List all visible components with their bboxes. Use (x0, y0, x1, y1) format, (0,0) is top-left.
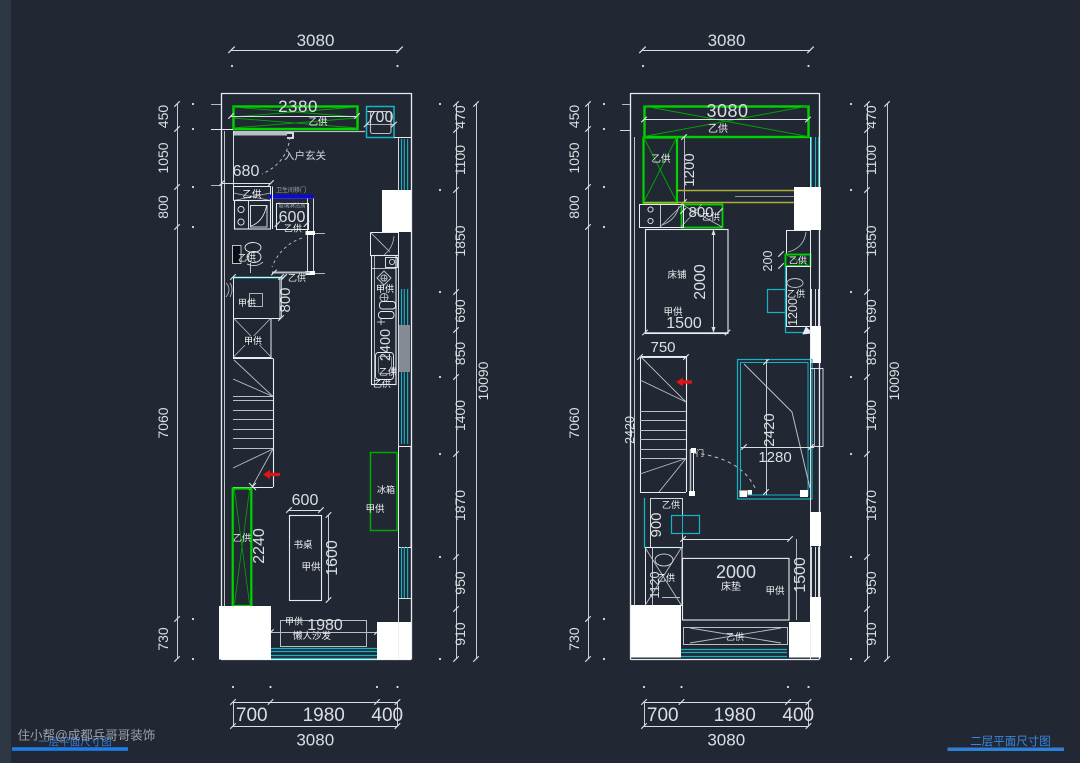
svg-text:10090: 10090 (475, 361, 491, 400)
svg-text:乙供: 乙供 (726, 631, 744, 642)
svg-text:10090: 10090 (886, 361, 902, 400)
svg-text:950: 950 (863, 571, 879, 595)
svg-text:3080: 3080 (707, 731, 745, 750)
svg-text:1280: 1280 (758, 449, 791, 466)
svg-text:1850: 1850 (863, 225, 879, 256)
svg-text:1050: 1050 (155, 142, 171, 173)
svg-text:乙供: 乙供 (238, 252, 256, 263)
svg-text:200: 200 (761, 251, 775, 272)
svg-text:400: 400 (371, 705, 403, 726)
svg-text:乙供: 乙供 (242, 189, 262, 201)
svg-text:卫生间移门: 卫生间移门 (276, 186, 306, 194)
svg-text:700: 700 (367, 109, 394, 126)
svg-text:乙供: 乙供 (708, 122, 728, 135)
svg-text:甲供: 甲供 (765, 585, 785, 597)
svg-text:730: 730 (566, 627, 582, 651)
svg-text:450: 450 (566, 105, 582, 129)
svg-text:入户玄关: 入户玄关 (284, 149, 326, 162)
svg-text:470: 470 (863, 105, 879, 129)
svg-text:2420: 2420 (761, 413, 778, 446)
svg-text:450: 450 (155, 105, 171, 129)
svg-text:900: 900 (648, 512, 665, 537)
svg-text:800: 800 (566, 195, 582, 219)
svg-text:1200: 1200 (681, 153, 698, 186)
svg-text:950: 950 (452, 571, 468, 595)
svg-text:700: 700 (236, 705, 268, 726)
svg-text:住小帮@成都兵哥哥装饰: 住小帮@成都兵哥哥装饰 (18, 729, 156, 743)
svg-text:2240: 2240 (251, 528, 268, 564)
svg-text:乙供: 乙供 (288, 272, 306, 283)
svg-text:1200: 1200 (786, 298, 800, 326)
svg-text:700: 700 (647, 705, 679, 726)
svg-text:1870: 1870 (452, 490, 468, 521)
svg-text:7060: 7060 (155, 407, 171, 438)
svg-text:850: 850 (452, 342, 468, 366)
svg-text:7060: 7060 (566, 407, 582, 438)
svg-text:1980: 1980 (303, 705, 345, 726)
svg-text:2000: 2000 (692, 264, 709, 300)
svg-text:3080: 3080 (297, 31, 335, 50)
svg-text:乙供: 乙供 (702, 211, 720, 222)
svg-text:二层平面尺寸图: 二层平面尺寸图 (970, 734, 1051, 748)
svg-text:乙供: 乙供 (308, 116, 328, 128)
svg-text:乙供: 乙供 (662, 499, 680, 510)
svg-text:910: 910 (863, 622, 879, 646)
svg-text:1120: 1120 (648, 572, 662, 599)
svg-text:甲供: 甲供 (365, 503, 385, 515)
svg-text:2380: 2380 (278, 97, 318, 116)
svg-text:730: 730 (155, 627, 171, 651)
svg-text:甲供: 甲供 (244, 335, 262, 346)
svg-text:甲供: 甲供 (376, 283, 394, 294)
svg-text:910: 910 (452, 622, 468, 646)
svg-text:床铺: 床铺 (667, 269, 686, 281)
svg-text:690: 690 (452, 299, 468, 323)
svg-text:3080: 3080 (296, 731, 334, 750)
svg-text:乙供: 乙供 (651, 153, 671, 165)
svg-text:甲供: 甲供 (238, 297, 256, 308)
svg-text:1500: 1500 (666, 315, 702, 332)
svg-text:乙供: 乙供 (379, 366, 397, 377)
svg-text:1980: 1980 (714, 705, 756, 726)
svg-text:懒人沙发: 懒人沙发 (293, 630, 332, 642)
svg-text:乙供: 乙供 (233, 532, 251, 543)
svg-text:2420: 2420 (623, 416, 637, 444)
svg-text:床垫: 床垫 (721, 580, 741, 593)
svg-text:600: 600 (292, 492, 319, 509)
svg-text:乙供: 乙供 (373, 378, 391, 389)
svg-text:400: 400 (782, 705, 814, 726)
svg-text:1500: 1500 (792, 557, 809, 593)
svg-text:1400: 1400 (452, 400, 468, 431)
svg-text:乙供: 乙供 (284, 223, 302, 234)
svg-text:甲供: 甲供 (301, 561, 321, 573)
svg-text:乙供: 乙供 (789, 255, 807, 266)
svg-text:470: 470 (452, 105, 468, 129)
svg-text:3080: 3080 (706, 101, 748, 121)
svg-text:850: 850 (863, 342, 879, 366)
svg-text:乙供: 乙供 (787, 288, 805, 299)
svg-text:1600: 1600 (324, 540, 341, 576)
svg-text:书桌: 书桌 (293, 539, 313, 551)
svg-text:1850: 1850 (452, 225, 468, 256)
svg-text:750: 750 (650, 339, 675, 356)
svg-text:1870: 1870 (863, 490, 879, 521)
svg-text:1100: 1100 (863, 145, 879, 175)
svg-text:690: 690 (863, 299, 879, 323)
svg-text:冰箱: 冰箱 (377, 484, 395, 495)
svg-text:1050: 1050 (566, 142, 582, 173)
svg-text:2000: 2000 (716, 562, 756, 582)
svg-text:680: 680 (233, 163, 260, 180)
svg-text:3080: 3080 (708, 31, 746, 50)
svg-text:800: 800 (155, 195, 171, 219)
svg-text:甲供: 甲供 (285, 616, 303, 627)
svg-text:1400: 1400 (863, 400, 879, 431)
svg-text:1100: 1100 (452, 145, 468, 175)
